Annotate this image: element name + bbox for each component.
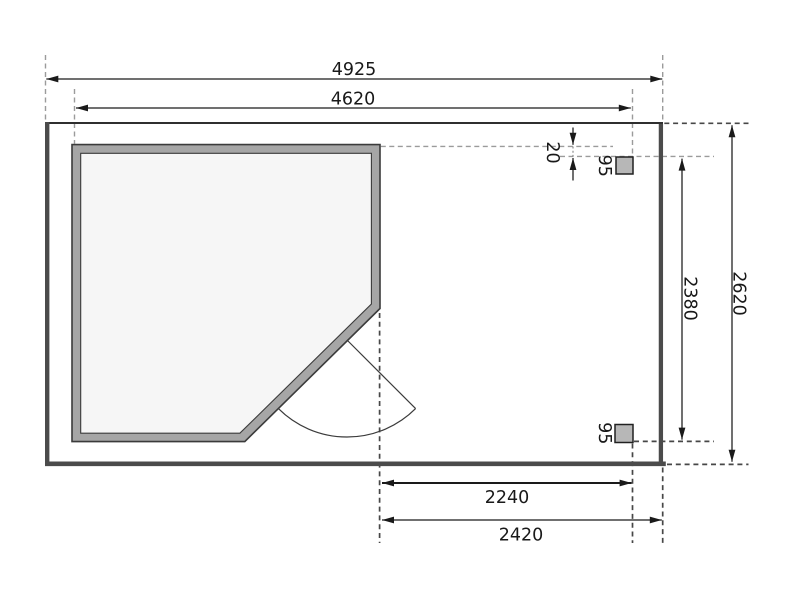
dim-label-wall-post-offset: 20 — [542, 141, 562, 163]
door-leaf — [347, 340, 416, 409]
extension-lines-light — [46, 55, 715, 156]
dim-label-canopy-inner-width: 2240 — [485, 488, 530, 508]
floor-plan-drawing: 4925 4620 2240 2420 2620 2380 20 95 95 — [0, 0, 800, 600]
dim-label-total-depth: 2620 — [729, 271, 749, 316]
dim-label-total-width: 4925 — [332, 60, 377, 80]
door-swing-arc — [278, 409, 415, 437]
dim-label-canopy-width: 2420 — [499, 526, 544, 546]
dim-label-post-size-top: 95 — [594, 155, 614, 177]
post-top — [616, 157, 633, 174]
dim-label-post-size-bottom: 95 — [594, 422, 614, 444]
canopy-posts — [615, 157, 633, 443]
cabin — [72, 145, 380, 442]
dim-label-house-width: 4620 — [331, 90, 376, 110]
extension-lines-dark — [380, 123, 749, 543]
floor-plan-canvas: 4925 4620 2240 2420 2620 2380 20 95 95 — [0, 0, 800, 600]
post-bottom — [615, 425, 633, 443]
cabin-interior — [81, 153, 372, 433]
dimension-labels: 4925 4620 2240 2420 2620 2380 20 95 95 — [331, 60, 749, 546]
dim-label-post-distance: 2380 — [680, 276, 700, 321]
